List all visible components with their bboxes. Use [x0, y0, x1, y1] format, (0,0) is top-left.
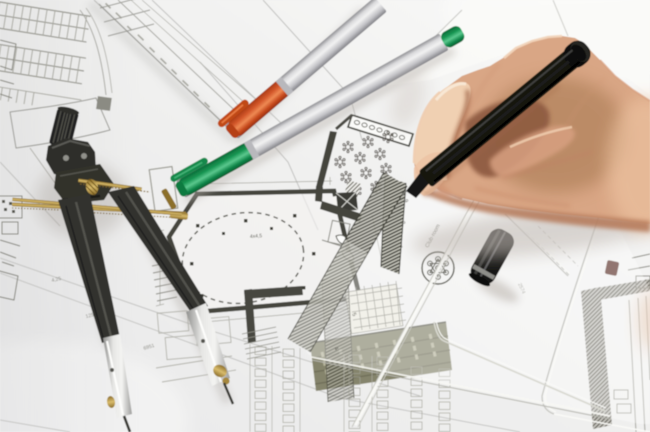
svg-text:4x4,5: 4x4,5 — [250, 233, 263, 240]
